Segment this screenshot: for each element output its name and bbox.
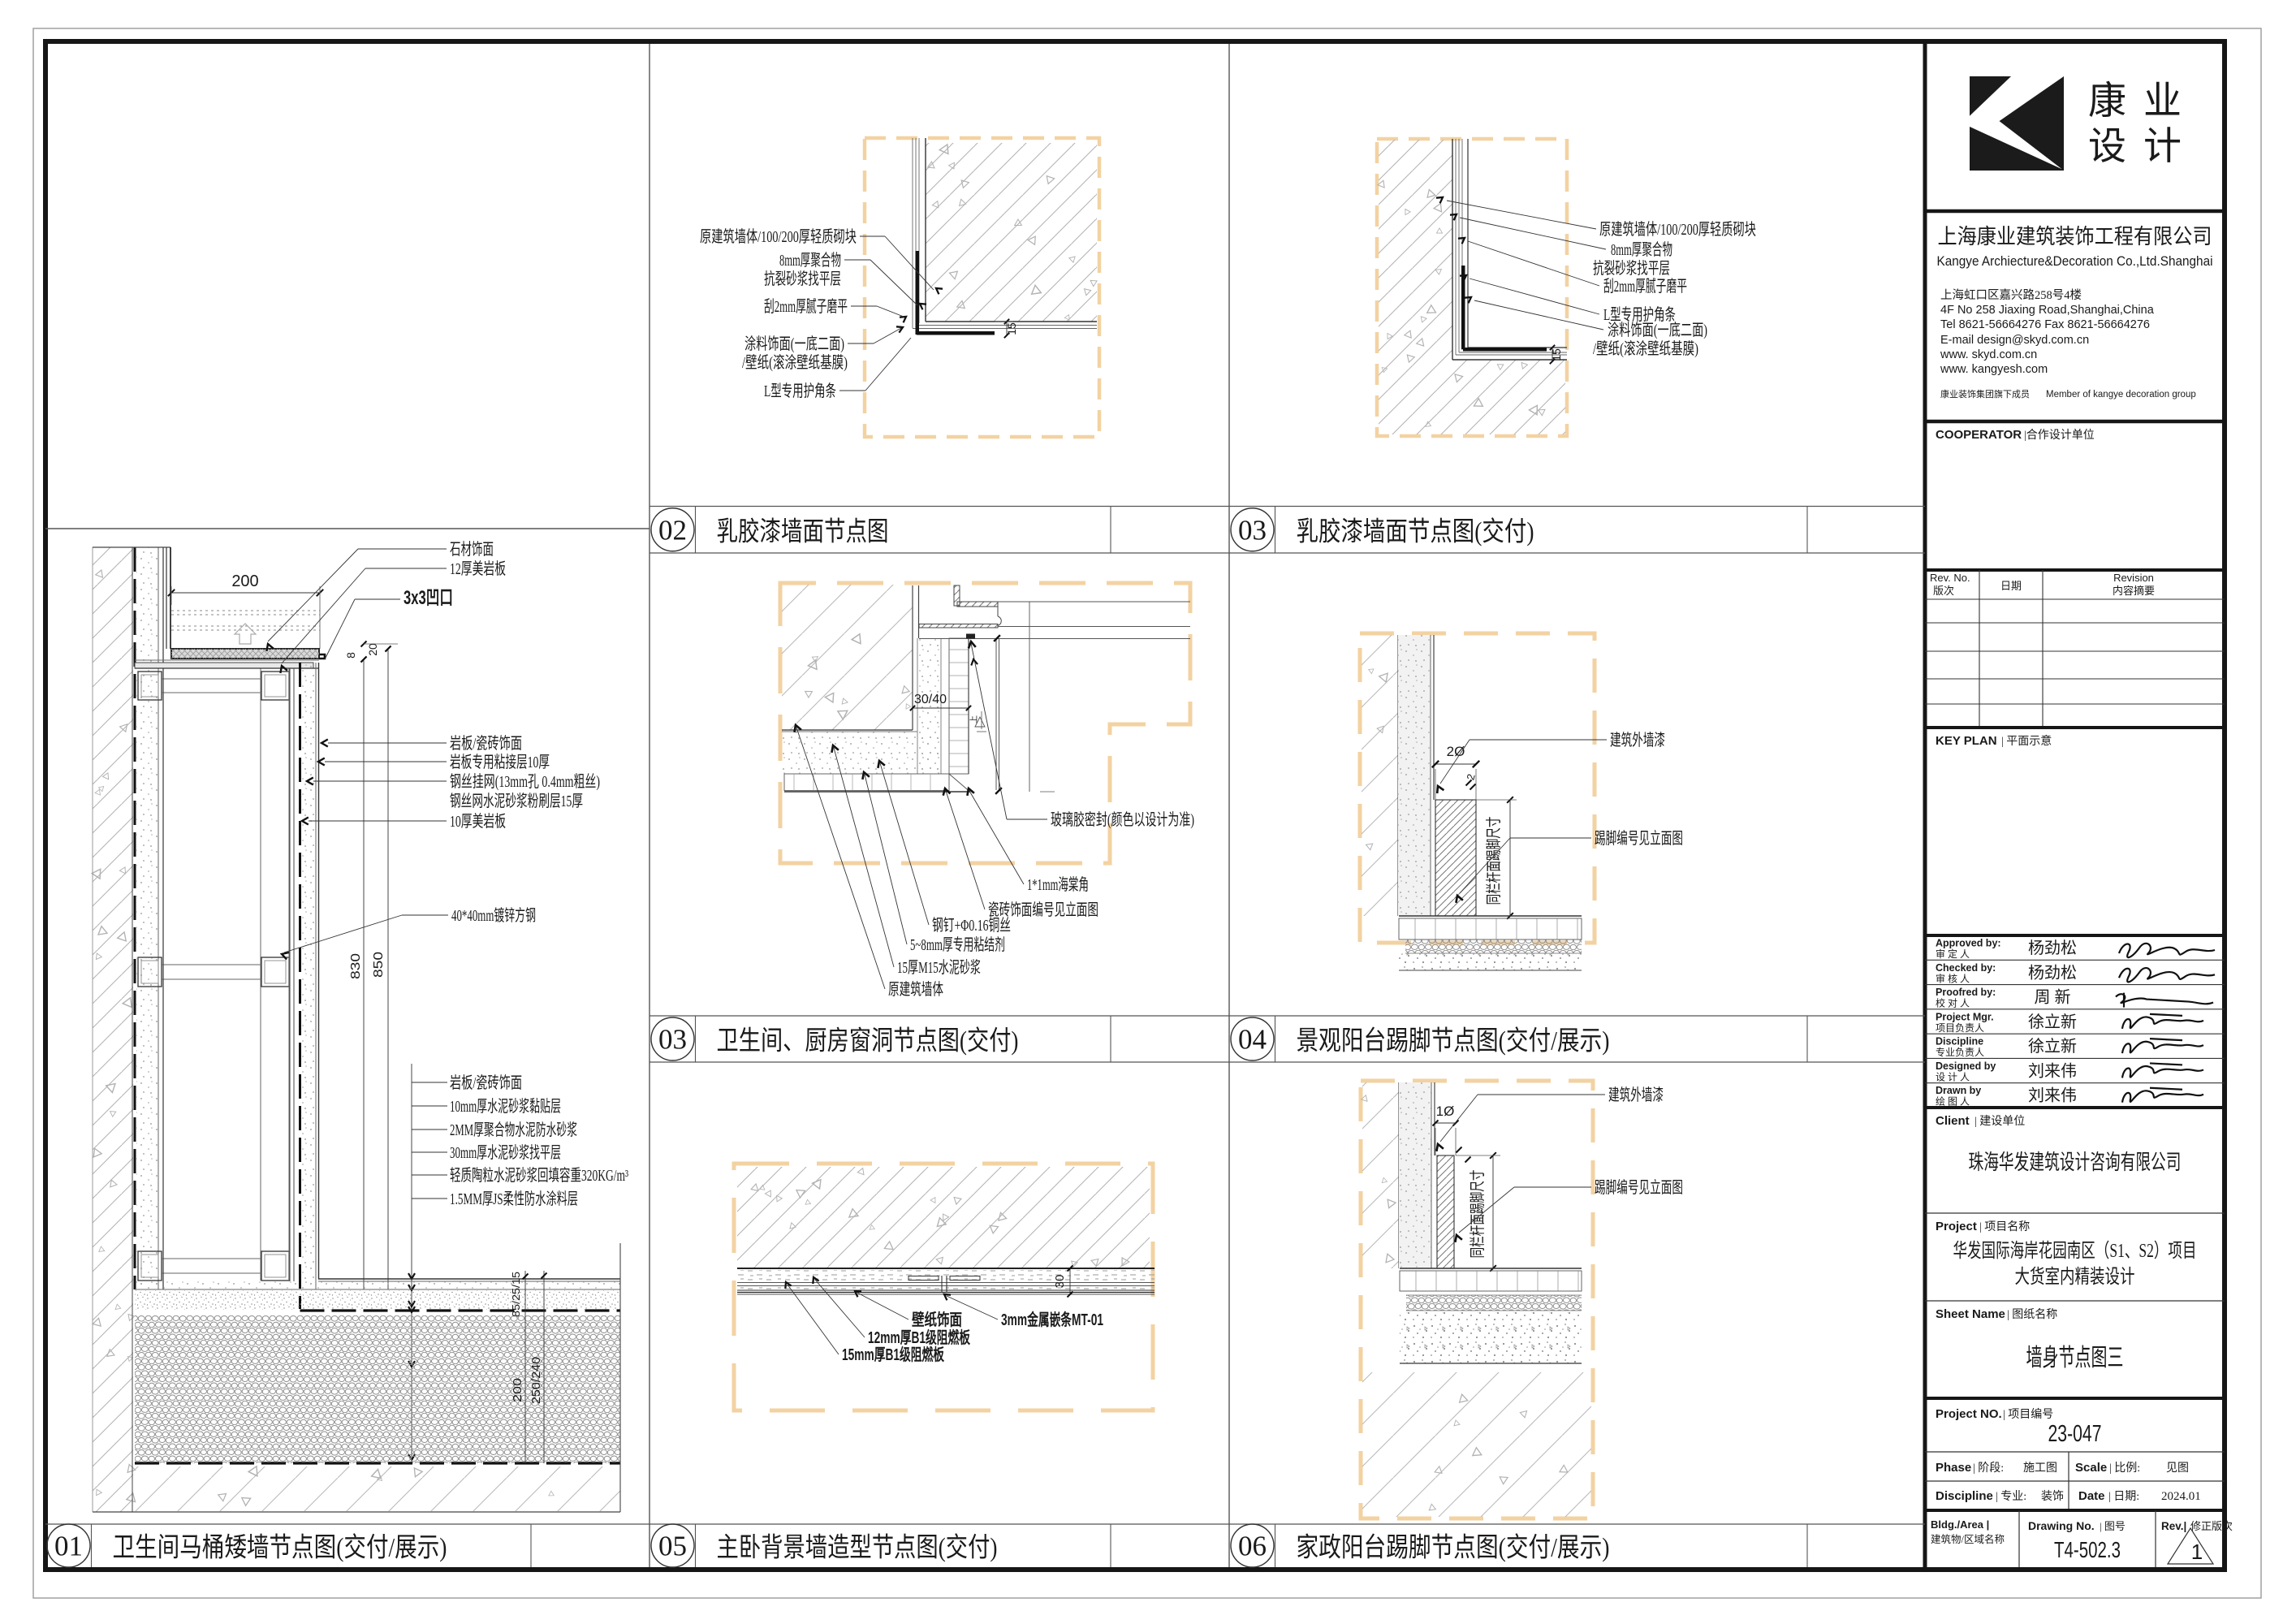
- svg-text:| 图纸名称: | 图纸名称: [2007, 1308, 2057, 1321]
- svg-text:Designed by: Designed by: [1936, 1060, 1996, 1072]
- svg-text:抗裂砂浆找平层: 抗裂砂浆找平层: [764, 270, 841, 288]
- svg-text:03: 03: [658, 1024, 687, 1056]
- svg-text:| 专业:: | 专业:: [1996, 1490, 2026, 1503]
- svg-text:01: 01: [54, 1531, 83, 1562]
- svg-text:| 建设单位: | 建设单位: [1974, 1115, 2025, 1128]
- svg-text:| 比例:: | 比例:: [2109, 1462, 2140, 1475]
- svg-text:石材饰面: 石材饰面: [450, 540, 494, 559]
- svg-text:Scale: Scale: [2075, 1461, 2107, 1475]
- svg-text:审 核 人: 审 核 人: [1936, 972, 1970, 984]
- svg-text:大货室内精装设计: 大货室内精装设计: [2015, 1266, 2135, 1288]
- svg-text:主卧背景墙造型节点图(交付): 主卧背景墙造型节点图(交付): [717, 1533, 998, 1563]
- svg-text:施工图: 施工图: [2023, 1462, 2057, 1475]
- svg-text:同栏杆面踢脚尺寸: 同栏杆面踢脚尺寸: [1469, 1170, 1487, 1259]
- svg-text:/壁纸(滚涂壁纸基膜): /壁纸(滚涂壁纸基膜): [1593, 339, 1698, 358]
- svg-text:15mm厚B1级阻燃板: 15mm厚B1级阻燃板: [842, 1345, 945, 1364]
- svg-text:1: 1: [2191, 1540, 2203, 1564]
- svg-text:3mm金属嵌条MT-01: 3mm金属嵌条MT-01: [1001, 1310, 1103, 1329]
- svg-text:10厚美岩板: 10厚美岩板: [450, 812, 506, 831]
- svg-text:200: 200: [511, 1378, 524, 1402]
- svg-text:杨劲松: 杨劲松: [2028, 939, 2077, 957]
- svg-text:设 计 人: 设 计 人: [1936, 1071, 1970, 1082]
- svg-text:Project NO.: Project NO.: [1936, 1407, 2002, 1421]
- svg-text:岩板专用粘接层10厚: 岩板专用粘接层10厚: [450, 753, 550, 771]
- svg-text:壁纸饰面: 壁纸饰面: [912, 1310, 962, 1329]
- svg-text:Sheet Name: Sheet Name: [1936, 1307, 2005, 1321]
- svg-text:踢脚编号见立面图: 踢脚编号见立面图: [1595, 829, 1683, 848]
- svg-text:| 阶段:: | 阶段:: [1973, 1462, 2004, 1475]
- svg-text:12厚美岩板: 12厚美岩板: [450, 559, 506, 578]
- svg-text:| 日期:: | 日期:: [2108, 1490, 2139, 1503]
- svg-text:T4-502.3: T4-502.3: [2054, 1537, 2121, 1562]
- svg-text:上: 上: [969, 715, 979, 723]
- svg-text:1.5MM厚JS柔性防水涂料层: 1.5MM厚JS柔性防水涂料层: [450, 1190, 578, 1208]
- svg-text:Client: Client: [1936, 1114, 1970, 1128]
- svg-text:|合作设计单位: |合作设计单位: [2024, 429, 2095, 442]
- svg-text:乳胶漆墙面节点图: 乳胶漆墙面节点图: [717, 516, 889, 546]
- svg-text:30: 30: [1053, 1275, 1067, 1289]
- svg-text:30mm厚水泥砂浆找平层: 30mm厚水泥砂浆找平层: [450, 1143, 561, 1162]
- svg-text:05: 05: [658, 1531, 687, 1562]
- svg-text:Checked by:: Checked by:: [1936, 962, 1996, 974]
- svg-text:卫生间、厨房窗洞节点图(交付): 卫生间、厨房窗洞节点图(交付): [717, 1026, 1019, 1056]
- svg-text:玻璃胶密封(颜色以设计为准): 玻璃胶密封(颜色以设计为准): [1051, 810, 1194, 829]
- svg-text:03: 03: [1238, 514, 1267, 546]
- svg-text:15厚M15水泥砂浆: 15厚M15水泥砂浆: [897, 958, 981, 977]
- svg-text:15: 15: [1005, 322, 1018, 335]
- svg-text:涂料饰面(一底二面): 涂料饰面(一底二面): [744, 335, 844, 353]
- svg-text:钢丝网水泥砂浆粉刷层15厚: 钢丝网水泥砂浆粉刷层15厚: [450, 792, 583, 810]
- svg-text:原建筑墙体/100/200厚轻质砌块: 原建筑墙体/100/200厚轻质砌块: [700, 227, 857, 246]
- svg-text:康业: 康业: [2088, 79, 2199, 122]
- svg-text:23-047: 23-047: [2048, 1421, 2102, 1447]
- svg-text:Project: Project: [1936, 1220, 1977, 1233]
- svg-text:Rev.|: Rev.|: [2161, 1520, 2186, 1532]
- svg-text:内容摘要: 内容摘要: [2113, 585, 2155, 597]
- svg-text:见图: 见图: [2166, 1462, 2189, 1475]
- svg-text:02: 02: [658, 514, 687, 546]
- svg-text:刮2mm厚腻子磨平: 刮2mm厚腻子磨平: [764, 297, 848, 316]
- svg-text:建筑物/区域名称: 建筑物/区域名称: [1931, 1533, 2005, 1545]
- svg-text:/壁纸(滚涂壁纸基膜): /壁纸(滚涂壁纸基膜): [742, 353, 848, 372]
- svg-text:上海虹口区嘉兴路258号4楼: 上海虹口区嘉兴路258号4楼: [1940, 288, 2082, 302]
- svg-text:轻质陶粒水泥砂浆回填容重320KG/m³: 轻质陶粒水泥砂浆回填容重320KG/m³: [450, 1166, 628, 1185]
- svg-text:COOPERATOR: COOPERATOR: [1936, 428, 2022, 442]
- svg-text:2MM厚聚合物水泥防水砂浆: 2MM厚聚合物水泥防水砂浆: [450, 1121, 577, 1139]
- svg-text:项目负责人: 项目负责人: [1936, 1022, 1984, 1034]
- svg-text:Proofred by:: Proofred by:: [1936, 987, 1996, 998]
- svg-text:15: 15: [1550, 348, 1563, 361]
- svg-text:| 图号: | 图号: [2100, 1520, 2126, 1532]
- svg-text:E-mail design@skyd.com.cn: E-mail design@skyd.com.cn: [1940, 334, 2089, 347]
- svg-text:85/25/15: 85/25/15: [510, 1272, 522, 1317]
- svg-text:12mm厚B1级阻燃板: 12mm厚B1级阻燃板: [868, 1328, 971, 1347]
- svg-text:刘来伟: 刘来伟: [2028, 1061, 2077, 1080]
- svg-text:徐立新: 徐立新: [2028, 1037, 2077, 1056]
- svg-text:钢丝挂网(13mm孔 0.4mm粗丝): 钢丝挂网(13mm孔 0.4mm粗丝): [450, 772, 600, 791]
- svg-text:上海康业建筑装饰工程有限公司: 上海康业建筑装饰工程有限公司: [1938, 224, 2212, 248]
- svg-text:Discipline: Discipline: [1936, 1036, 1983, 1047]
- svg-text:Date: Date: [2078, 1489, 2105, 1503]
- svg-text:原建筑墙体: 原建筑墙体: [888, 980, 943, 999]
- svg-text:850: 850: [372, 952, 386, 978]
- svg-text:www. kangyesh.com: www. kangyesh.com: [1940, 363, 2048, 376]
- svg-text:日期: 日期: [2000, 580, 2022, 592]
- svg-text:04: 04: [1238, 1024, 1267, 1056]
- svg-text:钢钉+Φ0.16铜丝: 钢钉+Φ0.16铜丝: [932, 916, 1011, 935]
- svg-text:墙身节点图三: 墙身节点图三: [2026, 1345, 2124, 1371]
- svg-text:06: 06: [1238, 1531, 1267, 1562]
- svg-text:1Ø: 1Ø: [1436, 1104, 1455, 1119]
- svg-text:装饰: 装饰: [2041, 1490, 2064, 1503]
- svg-text:2024.01: 2024.01: [2161, 1490, 2201, 1503]
- svg-text:Tel 8621-56664276 Fax 8621-56: Tel 8621-56664276 Fax 8621-56664276: [1940, 318, 2150, 331]
- svg-text:绘 图 人: 绘 图 人: [1936, 1095, 1970, 1108]
- svg-text:康业装饰集团旗下成员: 康业装饰集团旗下成员: [1940, 388, 2030, 400]
- svg-text:Member of kangye decoration gr: Member of kangye decoration group: [2046, 390, 2196, 400]
- svg-text:Project Mgr.: Project Mgr.: [1936, 1011, 1994, 1022]
- svg-text:设计: 设计: [2088, 124, 2199, 167]
- svg-text:Discipline: Discipline: [1936, 1489, 1993, 1503]
- svg-text:3x3凹口: 3x3凹口: [404, 587, 453, 609]
- svg-text:www. skyd.com.cn: www. skyd.com.cn: [1940, 348, 2037, 361]
- svg-text:830: 830: [349, 953, 363, 979]
- svg-text:Phase: Phase: [1936, 1461, 1971, 1475]
- svg-text:Bldg./Area |: Bldg./Area |: [1931, 1518, 1989, 1531]
- svg-text:刘来伟: 刘来伟: [2028, 1086, 2077, 1105]
- svg-text:2Ø: 2Ø: [1447, 744, 1465, 759]
- svg-text:杨劲松: 杨劲松: [2028, 963, 2077, 982]
- svg-text:20: 20: [366, 643, 379, 656]
- svg-text:徐立新: 徐立新: [2028, 1013, 2077, 1031]
- svg-text:踢脚编号见立面图: 踢脚编号见立面图: [1595, 1178, 1683, 1197]
- svg-text:校 对 人: 校 对 人: [1936, 997, 1970, 1009]
- svg-text:建筑外墙漆: 建筑外墙漆: [1610, 731, 1665, 749]
- svg-text:涂料饰面(一底二面): 涂料饰面(一底二面): [1608, 321, 1707, 339]
- svg-text:岩板/瓷砖饰面: 岩板/瓷砖饰面: [450, 734, 522, 753]
- svg-text:Drawn by: Drawn by: [1936, 1085, 1981, 1096]
- svg-text:华发国际海岸花园南区（S1、S2）项目: 华发国际海岸花园南区（S1、S2）项目: [1953, 1240, 2197, 1262]
- svg-text:原建筑墙体/100/200厚轻质砌块: 原建筑墙体/100/200厚轻质砌块: [1599, 220, 1756, 239]
- svg-text:家政阳台踢脚节点图(交付/展示): 家政阳台踢脚节点图(交付/展示): [1297, 1533, 1610, 1563]
- svg-text:200: 200: [231, 572, 258, 590]
- svg-text:| 项目名称: | 项目名称: [1979, 1220, 2030, 1233]
- svg-text:卫生间马桶矮墙节点图(交付/展示): 卫生间马桶矮墙节点图(交付/展示): [113, 1533, 447, 1563]
- svg-text:同栏杆面踢脚尺寸: 同栏杆面踢脚尺寸: [1485, 817, 1503, 905]
- svg-text:4F No 258 Jiaxing Road,Shangha: 4F No 258 Jiaxing Road,Shanghai,China: [1940, 304, 2155, 317]
- svg-text:周 新: 周 新: [2035, 988, 2071, 1007]
- svg-text:10mm厚水泥砂浆黏贴层: 10mm厚水泥砂浆黏贴层: [450, 1097, 561, 1116]
- svg-text:Approved by:: Approved by:: [1936, 938, 2001, 949]
- svg-text:| 平面示意: | 平面示意: [2001, 734, 2052, 748]
- svg-text:KEY PLAN: KEY PLAN: [1936, 734, 1997, 748]
- svg-text:专业负责人: 专业负责人: [1936, 1046, 1984, 1058]
- svg-text:珠海华发建筑设计咨询有限公司: 珠海华发建筑设计咨询有限公司: [1969, 1151, 2182, 1174]
- svg-text:乳胶漆墙面节点图(交付): 乳胶漆墙面节点图(交付): [1297, 516, 1534, 546]
- svg-text:景观阳台踢脚节点图(交付/展示): 景观阳台踢脚节点图(交付/展示): [1297, 1026, 1610, 1056]
- svg-text:5~8mm厚专用粘结剂: 5~8mm厚专用粘结剂: [910, 935, 1005, 954]
- svg-text:刮2mm厚腻子磨平: 刮2mm厚腻子磨平: [1603, 277, 1687, 296]
- svg-text:版次: 版次: [1933, 585, 1954, 597]
- svg-text:30/40: 30/40: [914, 693, 947, 706]
- svg-text:Rev. No.: Rev. No.: [1930, 572, 1970, 584]
- svg-text:岩板/瓷砖饰面: 岩板/瓷砖饰面: [450, 1073, 522, 1092]
- svg-text:抗裂砂浆找平层: 抗裂砂浆找平层: [1593, 259, 1670, 278]
- svg-text:40*40mm镀锌方钢: 40*40mm镀锌方钢: [451, 906, 536, 925]
- svg-text:Drawing No.: Drawing No.: [2028, 1519, 2095, 1532]
- svg-text:L型专用护角条: L型专用护角条: [764, 382, 836, 400]
- svg-text:8mm厚聚合物: 8mm厚聚合物: [779, 251, 841, 270]
- svg-text:Kangye Archiecture&Decoration: Kangye Archiecture&Decoration Co.,Ltd.Sh…: [1937, 254, 2213, 269]
- svg-text:8mm厚聚合物: 8mm厚聚合物: [1611, 240, 1672, 259]
- svg-text:| 项目编号: | 项目编号: [2003, 1408, 2053, 1421]
- svg-text:建筑外墙漆: 建筑外墙漆: [1608, 1086, 1664, 1104]
- svg-text:8: 8: [344, 652, 357, 659]
- svg-text:1*1mm海棠角: 1*1mm海棠角: [1027, 875, 1089, 894]
- svg-text:修正版次: 修正版次: [2190, 1520, 2233, 1532]
- svg-text:250/240: 250/240: [529, 1357, 543, 1404]
- svg-text:Revision: Revision: [2113, 572, 2154, 584]
- svg-text:审 定 人: 审 定 人: [1936, 948, 1970, 960]
